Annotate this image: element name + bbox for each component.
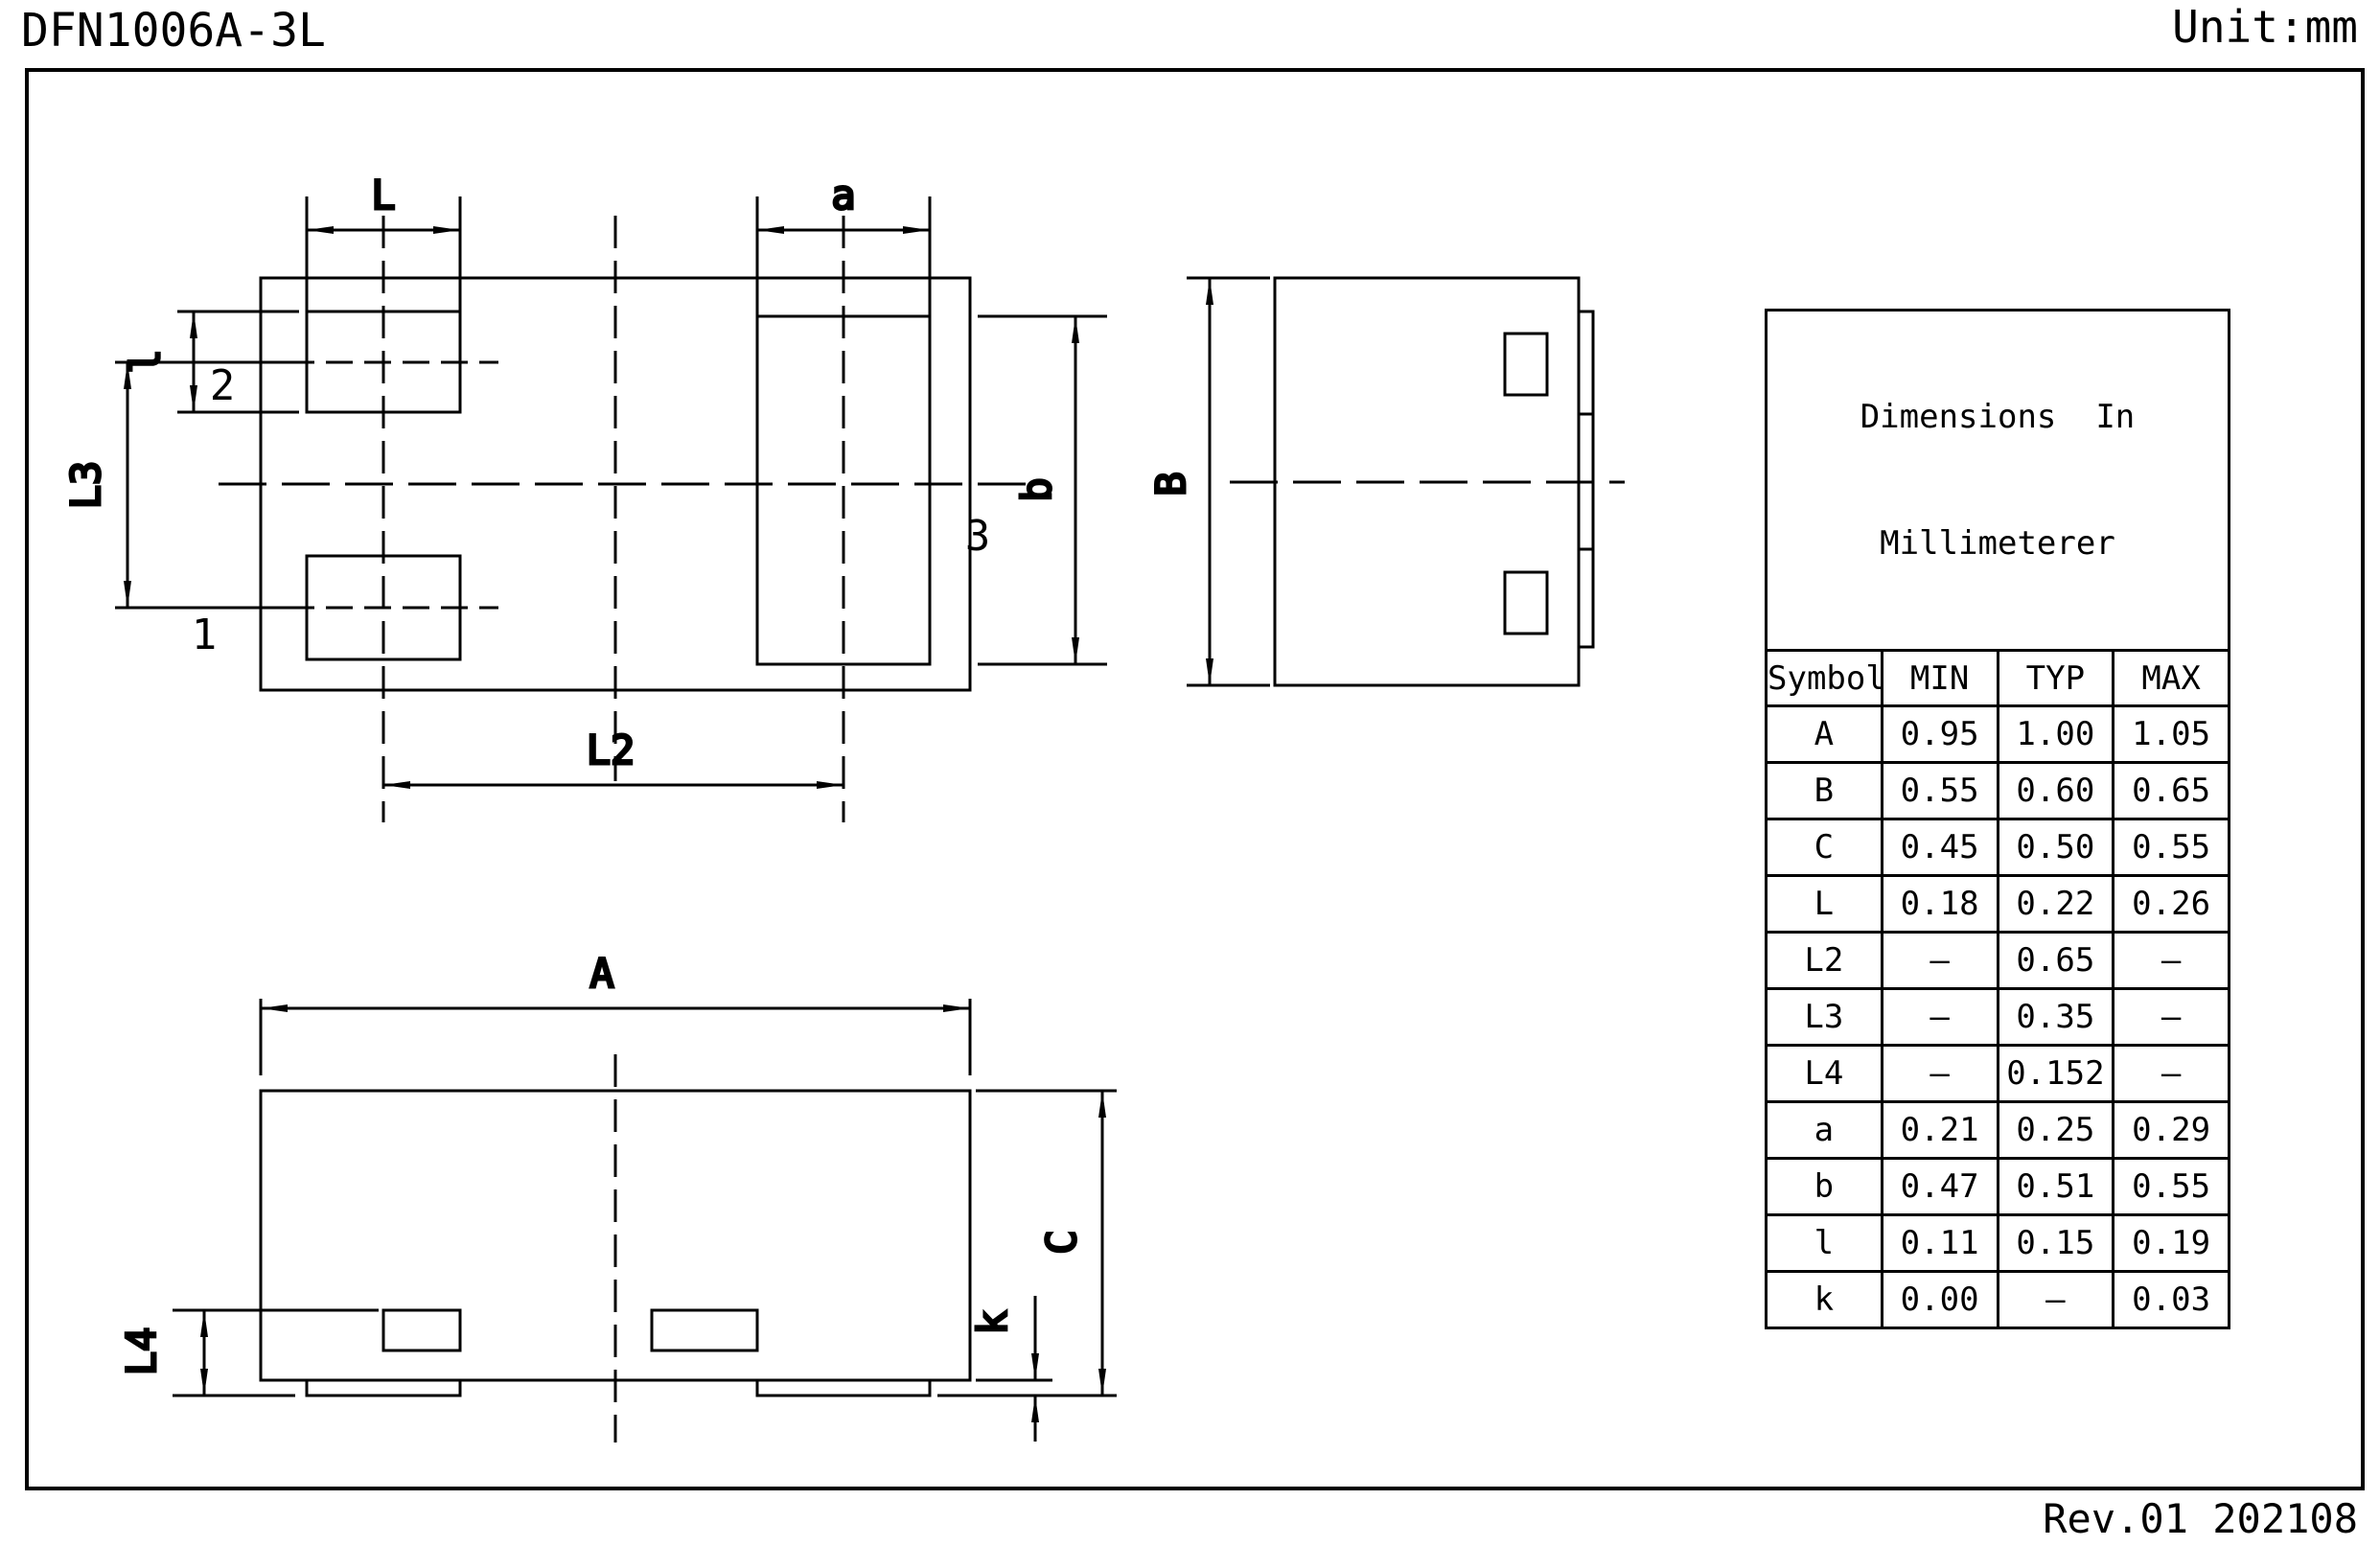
table-row: L3 – 0.35 – (1767, 989, 2230, 1046)
cell-typ: 0.60 (1998, 763, 2114, 819)
unit-label: Unit:mm (2172, 1, 2358, 53)
dim-label-k: k (969, 1310, 1016, 1334)
cell-min: 0.47 (1882, 1159, 1998, 1215)
revision-label: Rev.01 202108 (2043, 1495, 2358, 1542)
table-row: C 0.45 0.50 0.55 (1767, 819, 2230, 876)
col-header-symbol: Symbol (1767, 651, 1883, 706)
dim-k (937, 1296, 1117, 1442)
cell-typ: 0.50 (1998, 819, 2114, 876)
dim-label-C: C (1038, 1230, 1085, 1254)
table-row: a 0.21 0.25 0.29 (1767, 1102, 2230, 1159)
table-row: L4 – 0.152 – (1767, 1046, 2230, 1102)
table-row: B 0.55 0.60 0.65 (1767, 763, 2230, 819)
cell-max: 0.03 (2114, 1272, 2230, 1328)
cell-symbol: A (1767, 706, 1883, 763)
cell-typ: 0.25 (1998, 1102, 2114, 1159)
dim-label-b: b (1013, 477, 1060, 501)
cell-min: – (1882, 933, 1998, 989)
dim-label-L3: L3 (62, 461, 109, 510)
top-view: L a l L3 L2 (62, 172, 1107, 822)
cell-min: – (1882, 989, 1998, 1046)
pin-label-3: 3 (965, 512, 991, 561)
cell-symbol: b (1767, 1159, 1883, 1215)
cell-typ: 0.35 (1998, 989, 2114, 1046)
cell-typ: – (1998, 1272, 2114, 1328)
cell-max: 0.55 (2114, 1159, 2230, 1215)
cell-max: 0.29 (2114, 1102, 2230, 1159)
dim-label-L2: L2 (587, 727, 635, 773)
cell-min: 0.18 (1882, 876, 1998, 933)
dim-label-A: A (589, 950, 613, 997)
cell-symbol: B (1767, 763, 1883, 819)
cell-max: 0.19 (2114, 1215, 2230, 1272)
front-view-lead-right (757, 1380, 930, 1396)
front-view-lead-window-left (383, 1310, 460, 1350)
front-view-lead-left (307, 1380, 460, 1396)
table-row: L 0.18 0.22 0.26 (1767, 876, 2230, 933)
cell-symbol: L3 (1767, 989, 1883, 1046)
table-title: Dimensions In Millimeterer (1767, 311, 2230, 651)
cell-symbol: k (1767, 1272, 1883, 1328)
side-view: B (1147, 278, 1625, 685)
table-header-row: Symbol MIN TYP MAX (1767, 651, 2230, 706)
cell-symbol: L2 (1767, 933, 1883, 989)
pin-label-2: 2 (210, 361, 236, 410)
cell-typ: 0.15 (1998, 1215, 2114, 1272)
cell-min: 0.95 (1882, 706, 1998, 763)
dim-label-a: a (831, 172, 855, 219)
table-row: k 0.00 – 0.03 (1767, 1272, 2230, 1328)
pin-label-1: 1 (192, 611, 218, 659)
dimensions-table: Dimensions In Millimeterer Symbol MIN TY… (1765, 309, 2230, 1329)
table-row: l 0.11 0.15 0.19 (1767, 1215, 2230, 1272)
cell-min: – (1882, 1046, 1998, 1102)
cell-max: 0.26 (2114, 876, 2230, 933)
cell-min: 0.45 (1882, 819, 1998, 876)
cell-symbol: L4 (1767, 1046, 1883, 1102)
cell-min: 0.11 (1882, 1215, 1998, 1272)
side-view-lead-strip (1579, 312, 1593, 647)
cell-symbol: L (1767, 876, 1883, 933)
table-row: b 0.47 0.51 0.55 (1767, 1159, 2230, 1215)
col-header-min: MIN (1882, 651, 1998, 706)
side-view-lead-bottom (1505, 572, 1547, 634)
cell-symbol: a (1767, 1102, 1883, 1159)
col-header-max: MAX (2114, 651, 2230, 706)
cell-typ: 1.00 (1998, 706, 2114, 763)
table-title-line1: Dimensions In (1768, 396, 2228, 438)
dim-label-B: B (1147, 472, 1194, 496)
cell-typ: 0.22 (1998, 876, 2114, 933)
col-header-typ: TYP (1998, 651, 2114, 706)
dim-label-L: L (371, 172, 395, 219)
cell-symbol: l (1767, 1215, 1883, 1272)
cell-typ: 0.152 (1998, 1046, 2114, 1102)
cell-max: 0.55 (2114, 819, 2230, 876)
table-row: A 0.95 1.00 1.05 (1767, 706, 2230, 763)
cell-typ: 0.51 (1998, 1159, 2114, 1215)
cell-max: – (2114, 989, 2230, 1046)
cell-min: 0.55 (1882, 763, 1998, 819)
table-row: L2 – 0.65 – (1767, 933, 2230, 989)
front-view-lead-window-right (652, 1310, 757, 1350)
cell-max: 1.05 (2114, 706, 2230, 763)
side-view-lead-top (1505, 334, 1547, 395)
cell-min: 0.21 (1882, 1102, 1998, 1159)
cell-min: 0.00 (1882, 1272, 1998, 1328)
page-title: DFN1006A-3L (21, 4, 326, 58)
table-title-line2: Millimeterer (1768, 522, 2228, 565)
dim-L4 (173, 1310, 379, 1396)
cell-typ: 0.65 (1998, 933, 2114, 989)
cell-max: – (2114, 933, 2230, 989)
cell-symbol: C (1767, 819, 1883, 876)
dim-label-L4: L4 (118, 1327, 165, 1376)
cell-max: – (2114, 1046, 2230, 1102)
table-title-row: Dimensions In Millimeterer (1767, 311, 2230, 651)
cell-max: 0.65 (2114, 763, 2230, 819)
front-view: A L4 k C (118, 950, 1117, 1442)
